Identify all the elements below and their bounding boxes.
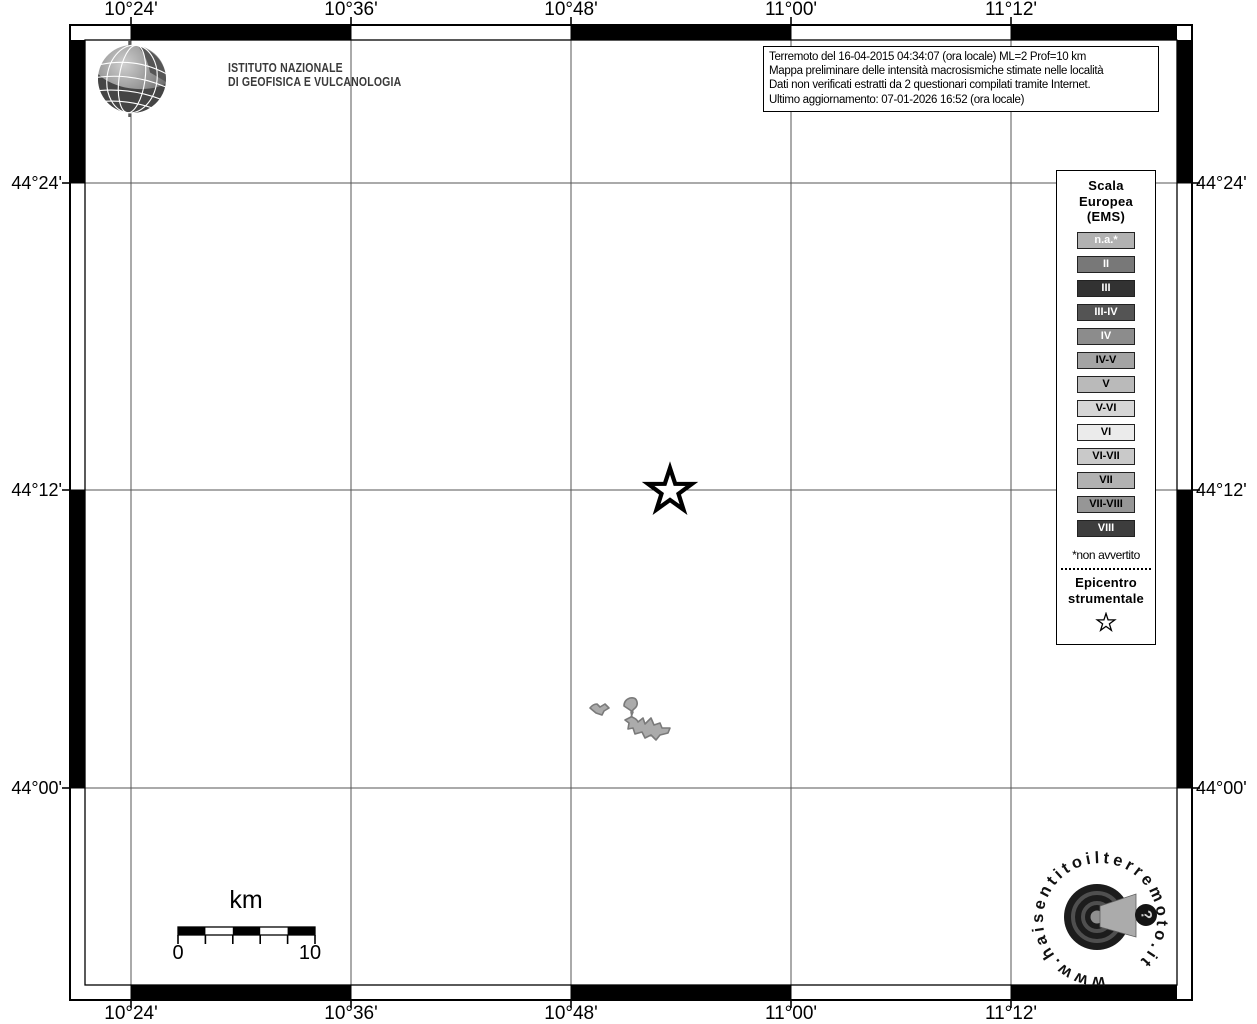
axis-label-left-2: 44°00' (0, 777, 62, 799)
ems-scale-item: VI-VII (1077, 448, 1135, 465)
epicenter-star-icon (1094, 612, 1118, 632)
frame-band-dividers (70, 25, 1192, 1000)
km-unit-label: km (229, 886, 262, 915)
ems-scale-item: III-IV (1077, 304, 1135, 321)
ems-legend: Scala Europea (EMS) n.a.* II III III-IV … (1056, 170, 1156, 645)
ems-scale-item: V (1077, 376, 1135, 393)
map-frame (70, 25, 1192, 1000)
legend-epicenter-title: Epicentro strumentale (1057, 575, 1155, 607)
legend-footnote: *non avvertito (1057, 548, 1155, 562)
axis-label-top-1: 10°36' (324, 0, 378, 20)
info-line-event: Terremoto del 16-04-2015 04:34:07 (ora l… (769, 50, 1153, 64)
macroseismic-map-page: { "branding": { "institute_name": "ISTIT… (0, 0, 1257, 1024)
ems-scale-item: II (1077, 256, 1135, 273)
info-line-updated: Ultimo aggiornamento: 07-01-2026 16:52 (… (769, 93, 1153, 107)
axis-label-top-2: 10°48' (544, 0, 598, 20)
ems-scale-item: VII (1077, 472, 1135, 489)
axis-label-bottom-1: 10°36' (324, 1004, 378, 1024)
axis-label-bottom-0: 10°24' (104, 1004, 158, 1024)
info-line-map: Mappa preliminare delle intensità macros… (769, 64, 1153, 78)
axis-label-bottom-4: 11°12' (985, 1004, 1037, 1024)
ems-scale-item: VIII (1077, 520, 1135, 537)
info-box: Terremoto del 16-04-2015 04:34:07 (ora l… (763, 46, 1159, 112)
map-frame-bands (70, 25, 1192, 1000)
legend-title: Scala Europea (EMS) (1057, 178, 1155, 225)
epicenter-star (648, 468, 692, 510)
scale-end-label: 10 (299, 942, 321, 965)
axis-label-top-3: 11°00' (765, 0, 817, 20)
ems-scale-item: VII-VIII (1077, 496, 1135, 513)
legend-divider (1061, 568, 1151, 570)
ingv-wordmark: ISTITUTO NAZIONALE DI GEOFISICA E VULCAN… (228, 61, 401, 89)
axis-label-right-0: 44°24' (1196, 172, 1257, 194)
scale-start-label: 0 (172, 942, 183, 965)
ems-scale-item: III (1077, 280, 1135, 297)
axis-label-bottom-2: 10°48' (544, 1004, 598, 1024)
lake-outlines (590, 698, 670, 740)
scale-bar-graphic (178, 927, 315, 944)
ems-scale-item: IV-V (1077, 352, 1135, 369)
axis-label-top-4: 11°12' (985, 0, 1037, 20)
axis-label-bottom-3: 11°00' (765, 1004, 817, 1024)
info-line-data: Dati non verificati estratti da 2 questi… (769, 78, 1153, 92)
axis-label-left-1: 44°12' (0, 479, 62, 501)
ems-scale-item: IV (1077, 328, 1135, 345)
ems-scale-item: n.a.* (1077, 232, 1135, 249)
axis-label-top-0: 10°24' (104, 0, 158, 20)
ems-scale-item: V-VI (1077, 400, 1135, 417)
axis-label-right-2: 44°00' (1196, 777, 1257, 799)
ems-scale-item: VI (1077, 424, 1135, 441)
ingv-globe-icon (94, 41, 171, 118)
haisentito-logo: ? www.haisentitoilterremoto.it (1029, 849, 1171, 991)
axis-label-right-1: 44°12' (1196, 479, 1257, 501)
map-grid (85, 40, 1177, 985)
axis-label-left-0: 44°24' (0, 172, 62, 194)
axis-ticks (62, 17, 1200, 1008)
